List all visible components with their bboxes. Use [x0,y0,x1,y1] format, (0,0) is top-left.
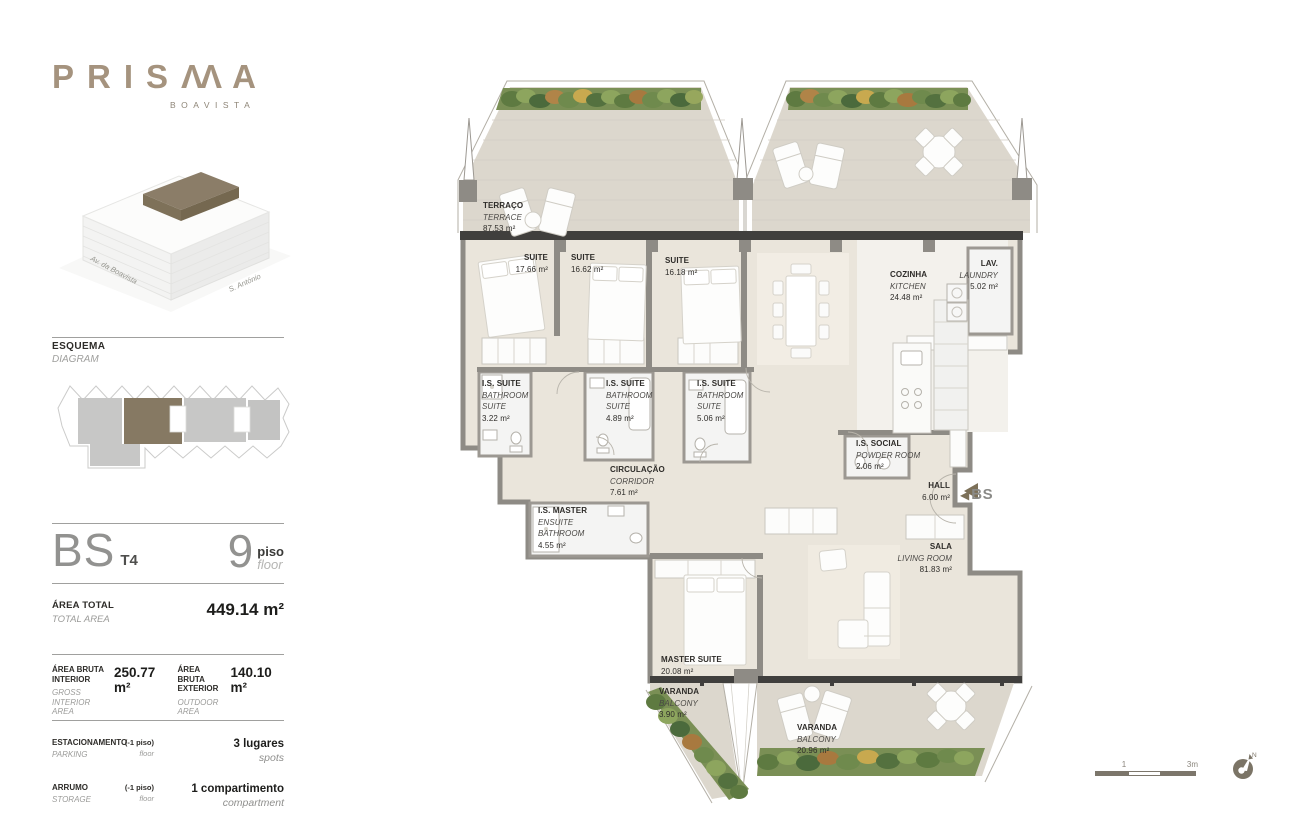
facade-wall-bottom [650,676,1022,683]
unit-header: BS T4 9 piso floor [52,527,284,573]
total-area-value: 449.14 m² [207,600,285,625]
gross-exterior-label-en: OUTDOOR AREA [178,698,225,717]
room-label-laundry: LAV. LAUNDRY 5.02 m² [940,258,998,293]
toilet-icon [511,432,521,444]
parking-label-pt: ESTACIONAMENTO [52,738,118,747]
storage-label-en: STORAGE [52,795,118,804]
floorplate-schematic [50,374,295,492]
total-area-label-pt: ÁREA TOTAL [52,600,114,611]
gross-exterior-value: 140.10 m² [230,665,286,717]
room-label-bathroom-3: I.S. SUITE BATHROOM SUITE 5.06 m² [697,378,743,424]
logo-letter: A [232,58,256,96]
balcony-door-frame [734,669,758,683]
esquema-title: ESQUEMA [52,341,105,352]
logo-letter: S [146,58,168,96]
floor-number: 9 [228,529,254,573]
room-label-suite-3: SUITE 16.18 m² [665,255,697,278]
room-label-powder-room: I.S. SOCIAL POWDER ROOM 2.06 m² [856,438,920,473]
storage-floor-note-pt: (-1 piso) [118,783,154,792]
logo-letter: P [52,58,74,96]
room-label-bathroom-1: I.S. SUITE BATHROOM SUITE 3.22 m² [482,378,528,424]
total-area-label-en: TOTAL AREA [52,614,114,625]
north-compass-icon: N [1228,750,1260,784]
unit-typology: T4 [120,552,138,569]
parking-value-en: spots [154,752,284,764]
parking-value-pt: 3 lugares [154,738,284,750]
room-label-hall: HALL 6.00 m² [900,480,950,503]
building-illustration: Av. da Boavista S. António [55,128,295,328]
divider [52,720,284,721]
room-label-bathroom-2: I.S. SUITE BATHROOM SUITE 4.89 m² [606,378,652,424]
scale-segments [1095,771,1196,776]
room-label-kitchen: COZINHA KITCHEN 24.48 m² [890,269,927,304]
gross-interior-label-en: GROSS INTERIOR AREA [52,688,108,717]
room-label-suite-2: SUITE 16.62 m² [571,252,603,275]
scale-bar: 1 3m [1095,760,1196,776]
brand-logo: PRISΛΛA [52,58,256,96]
room-label-master-suite: MASTER SUITE 20.08 m² [661,654,722,677]
basin-icon [483,430,497,440]
storage-value-en: compartment [154,797,284,809]
room-label-living-room: SALA LIVING ROOM 81.83 m² [868,541,952,576]
entry-unit-label: BS [971,486,993,503]
esquema-subtitle: DIAGRAM [52,354,99,365]
parking-label-en: PARKING [52,750,118,759]
scale-tick-1: 1 [1122,760,1126,769]
logo-letter: I [124,58,133,96]
floor-label-en: floor [257,558,284,571]
brand-subtitle: BOAVISTA [170,100,255,110]
gross-areas-row: ÁREA BRUTA INTERIOR GROSS INTERIOR AREA … [52,665,286,717]
room-label-terrace: TERRAÇO TERRACE 87.53 m² [483,200,523,235]
planter-greenery [496,88,971,110]
gross-interior-value: 250.77 m² [114,665,170,717]
storage-value-pt: 1 compartimento [154,783,284,795]
parking-floor-note-en: floor [118,749,154,758]
bs-entry-marker: ◀ BS [960,486,993,503]
sink-icon [901,351,922,365]
room-label-balcony-1: VARANDA BALCONY 3.90 m² [659,686,699,721]
room-label-ensuite: I.S. MASTER ENSUITE BATHROOM 4.55 m² [538,505,590,551]
entry-arrow-icon: ◀ [960,487,969,503]
total-area-row: ÁREA TOTAL TOTAL AREA 449.14 m² [52,600,284,625]
gross-interior-label-pt: ÁREA BRUTA INTERIOR [52,665,108,684]
logo-m-glyph: ΛΛ [181,58,219,96]
gross-exterior-label-pt: ÁREA BRUTA EXTERIOR [178,665,225,694]
room-label-suite-1: SUITE 17.66 m² [496,252,548,275]
unit-code: BS [52,527,115,573]
compass-n-label: N [1252,752,1257,759]
logo-letter: R [87,58,111,96]
storage-floor-note-en: floor [118,794,154,803]
plan-svg [440,60,1060,820]
scale-tick-3m: 3m [1187,760,1198,769]
facade-wall-top [460,231,1023,240]
room-label-balcony-2: VARANDA BALCONY 20.96 m² [797,722,837,757]
bed-icon [684,575,746,665]
storage-label-pt: ARRUMO [52,783,118,792]
parking-row: ESTACIONAMENTO PARKING (-1 piso) floor 3… [52,738,284,764]
room-label-corridor: CIRCULAÇÃO CORRIDOR 7.61 m² [610,464,665,499]
divider [52,337,284,338]
dryer-icon [947,303,967,321]
storage-row: ARRUMO STORAGE (-1 piso) floor 1 compart… [52,783,284,809]
parking-floor-note-pt: (-1 piso) [118,738,154,747]
divider [52,583,284,584]
divider [52,654,284,655]
floorplan-sheet: PRISΛΛA BOAVISTA Av. da Boavista S. Antó… [0,0,1303,835]
